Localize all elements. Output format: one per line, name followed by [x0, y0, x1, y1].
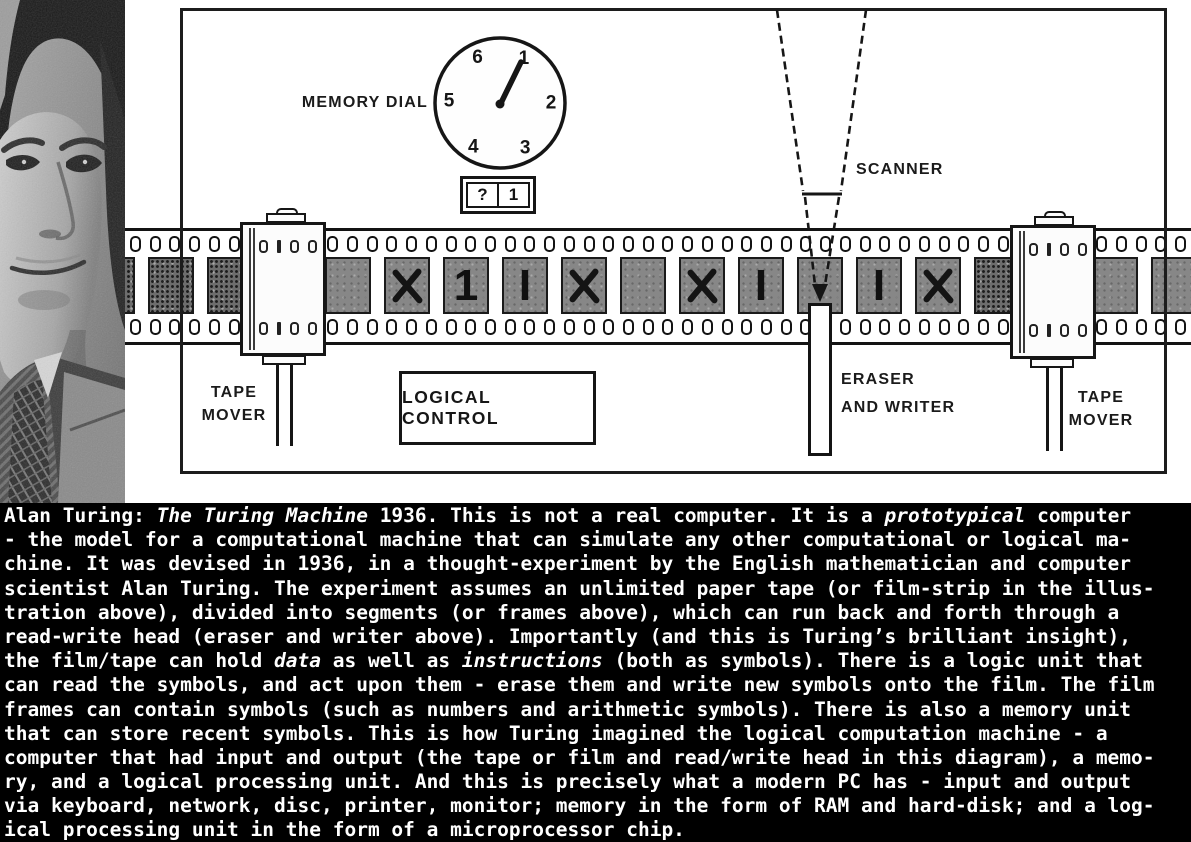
tape-mover-left-label: TAPEMOVER [196, 381, 272, 427]
sprocket-hole [603, 236, 614, 252]
sprocket-hole [564, 319, 575, 335]
sprocket-hole [367, 319, 378, 335]
sprocket-hole [446, 319, 457, 335]
sprocket-hole [1136, 319, 1147, 335]
sprocket-hole [150, 236, 161, 252]
hole-mark [1060, 324, 1069, 337]
hole-mark [1029, 243, 1038, 256]
symbol-cell: 1 [497, 184, 528, 206]
caption-italic-segment: data [274, 649, 321, 672]
caption-segment: computer that had input and output (the … [4, 746, 1155, 769]
turing-photo-art [0, 0, 125, 503]
sprocket-hole [860, 319, 871, 335]
sprocket-hole [169, 236, 180, 252]
sprocket-hole [406, 319, 417, 335]
caption-italic-segment: prototypical [885, 504, 1026, 527]
caption-line: Alan Turing: The Turing Machine 1936. Th… [4, 504, 1191, 528]
sprocket-hole [682, 236, 693, 252]
caption-segment: ry, and a logical processing unit. And t… [4, 770, 1131, 793]
sprocket-hole [406, 236, 417, 252]
sprocket-hole [702, 319, 713, 335]
sprocket-hole [722, 319, 733, 335]
caption-segment: (both as symbols). There is a logic unit… [603, 649, 1143, 672]
eraser-writer-label: ERASERAND WRITER [841, 366, 955, 422]
sprocket-hole [347, 319, 358, 335]
memory-dial-label: MEMORY DIAL [293, 94, 428, 112]
tape-mover-shaft-left [276, 364, 293, 446]
sprocket-hole [781, 236, 792, 252]
film-frame [325, 257, 371, 314]
sprocket-hole [643, 236, 654, 252]
tape-label-line: MOVER [1069, 412, 1134, 429]
film-frame [915, 257, 961, 314]
spool-hole-marks [1029, 243, 1087, 256]
eraser-label-line: AND WRITER [841, 399, 955, 416]
film-frame [1092, 257, 1138, 314]
sprocket-hole [584, 236, 595, 252]
logical-control-box: LOGICAL CONTROL [399, 371, 596, 445]
film-frame [620, 257, 666, 314]
sprocket-hole [998, 319, 1009, 335]
sprocket-hole [327, 236, 338, 252]
sprocket-hole [130, 236, 141, 252]
film-frame: 1 [443, 257, 489, 314]
tape-mover-shaft-right [1046, 367, 1063, 451]
caption-line: can read the symbols, and act upon them … [4, 673, 1191, 697]
sprocket-hole [386, 236, 397, 252]
caption-segment: scientist Alan Turing. The experiment as… [4, 577, 1155, 600]
sprocket-hole [505, 319, 516, 335]
hole-mark [290, 240, 299, 253]
sprocket-hole [919, 236, 930, 252]
sprocket-hole [1175, 236, 1186, 252]
sprocket-hole [840, 236, 851, 252]
symbol-register-inner: ? 1 [466, 182, 530, 208]
film-frame [148, 257, 194, 314]
sprocket-hole [209, 236, 220, 252]
sprocket-hole [761, 319, 772, 335]
hole-mark [277, 322, 281, 335]
film-frame: I [738, 257, 784, 314]
caption-segment: as well as [321, 649, 462, 672]
sprocket-hole [662, 236, 673, 252]
eraser-writer-head [808, 303, 832, 456]
logical-control-label: LOGICAL CONTROL [402, 387, 593, 429]
sprocket-hole [603, 319, 614, 335]
sprocket-hole [327, 319, 338, 335]
caption-segment: tration above), divided into segments (o… [4, 601, 1119, 624]
film-frame [1151, 257, 1191, 314]
caption-line: read-write head (eraser and writer above… [4, 625, 1191, 649]
caption-italic-segment: The Turing Machine [157, 504, 368, 527]
sprocket-hole [1155, 319, 1166, 335]
sprocket-hole [958, 236, 969, 252]
hole-mark [1078, 243, 1087, 256]
dial-number: 6 [472, 47, 483, 68]
caption-line: - the model for a computational machine … [4, 528, 1191, 552]
caption-line: scientist Alan Turing. The experiment as… [4, 577, 1191, 601]
spool-hole-marks [259, 322, 317, 335]
sprocket-hole [781, 319, 792, 335]
caption-segment: computer [1025, 504, 1131, 527]
tape-spool-right [1010, 225, 1096, 359]
sprocket-hole [386, 319, 397, 335]
hole-mark [1047, 324, 1051, 337]
turing-photo [0, 0, 125, 503]
sprocket-hole [1136, 236, 1147, 252]
caption-line: ry, and a logical processing unit. And t… [4, 770, 1191, 794]
sprocket-hole [169, 319, 180, 335]
sprocket-hole [643, 319, 654, 335]
sprocket-hole [939, 319, 950, 335]
spool-right-bottom-tab [1030, 358, 1074, 368]
sprocket-hole [189, 319, 200, 335]
film-frame: I [856, 257, 902, 314]
sprocket-hole [662, 319, 673, 335]
caption-line: tration above), divided into segments (o… [4, 601, 1191, 625]
sprocket-hole [919, 319, 930, 335]
sprocket-hole [1155, 236, 1166, 252]
spool-flange [249, 228, 255, 350]
caption-segment: Alan Turing: [4, 504, 157, 527]
film-frame [384, 257, 430, 314]
caption-text: Alan Turing: The Turing Machine 1936. Th… [0, 503, 1191, 842]
caption-segment: - the model for a computational machine … [4, 528, 1131, 551]
tape-mover-right-label: TAPEMOVER [1066, 386, 1136, 432]
sprocket-hole [820, 236, 831, 252]
sprocket-hole [189, 236, 200, 252]
film-frame [561, 257, 607, 314]
sprocket-hole [229, 236, 240, 252]
caption-segment: can read the symbols, and act upon them … [4, 673, 1155, 696]
dial-hub [496, 100, 505, 109]
sprocket-hole [367, 236, 378, 252]
sprocket-hole [1096, 319, 1107, 335]
sprocket-hole [505, 236, 516, 252]
sprocket-hole [446, 236, 457, 252]
sprocket-hole [800, 236, 811, 252]
hole-mark [308, 240, 317, 253]
sprocket-hole [1175, 319, 1186, 335]
caption-line: that can store recent symbols. This is h… [4, 722, 1191, 746]
sprocket-hole [702, 236, 713, 252]
sprocket-hole [524, 236, 535, 252]
dial-number: 4 [468, 136, 479, 157]
sprocket-hole [465, 236, 476, 252]
caption-segment: ical processing unit in the form of a mi… [4, 818, 685, 841]
caption-line: via keyboard, network, disc, printer, mo… [4, 794, 1191, 818]
caption-italic-segment: instructions [462, 649, 603, 672]
sprocket-hole [840, 319, 851, 335]
caption-line: chine. It was devised in 1936, in a thou… [4, 552, 1191, 576]
sprocket-hole [130, 319, 141, 335]
sprocket-hole [998, 236, 1009, 252]
hole-mark [1060, 243, 1069, 256]
sprocket-hole [761, 236, 772, 252]
film-frame [679, 257, 725, 314]
sprocket-hole [978, 319, 989, 335]
caption-line: frames can contain symbols (such as numb… [4, 698, 1191, 722]
sprocket-hole [722, 236, 733, 252]
spool-left-bottom-tab [262, 355, 306, 365]
hole-mark [308, 322, 317, 335]
caption-segment: the film/tape can hold [4, 649, 274, 672]
sprocket-hole [524, 319, 535, 335]
hole-mark [259, 240, 268, 253]
sprocket-hole [426, 236, 437, 252]
sprocket-hole [544, 319, 555, 335]
sprocket-hole [899, 236, 910, 252]
sprocket-hole [347, 236, 358, 252]
sprocket-hole [150, 319, 161, 335]
dial-number: 1 [519, 48, 530, 69]
hole-mark [259, 322, 268, 335]
sprocket-hole [485, 319, 496, 335]
tape-label-line: TAPE [1078, 389, 1124, 406]
sprocket-hole [899, 319, 910, 335]
sprocket-hole [1116, 319, 1127, 335]
spool-flange [1019, 231, 1025, 353]
hole-mark [1029, 324, 1038, 337]
sprocket-hole [879, 319, 890, 335]
film-frame [125, 257, 135, 314]
sprocket-hole [623, 319, 634, 335]
spool-hole-marks [1029, 324, 1087, 337]
sprocket-hole [544, 236, 555, 252]
symbol-cell: ? [468, 184, 497, 206]
screenshot-root: 1III TAPEMOVER TAPEMOVER 123456 MEMORY D… [0, 0, 1191, 842]
sprocket-hole [623, 236, 634, 252]
tape-label-line: TAPE [211, 384, 257, 401]
sprocket-hole [209, 319, 220, 335]
caption-line: the film/tape can hold data as well as i… [4, 649, 1191, 673]
sprocket-hole [426, 319, 437, 335]
sprocket-hole [564, 236, 575, 252]
caption-segment: chine. It was devised in 1936, in a thou… [4, 552, 1131, 575]
sprocket-hole [741, 236, 752, 252]
dial-number: 2 [546, 92, 557, 113]
sprocket-hole [939, 236, 950, 252]
dial-number: 3 [520, 137, 531, 158]
caption-segment: read-write head (eraser and writer above… [4, 625, 1131, 648]
sprocket-hole [741, 319, 752, 335]
caption-segment: 1936. This is not a real computer. It is… [368, 504, 885, 527]
dial-number: 5 [444, 91, 455, 112]
sprocket-hole [958, 319, 969, 335]
symbol-register: ? 1 [460, 176, 536, 214]
hole-mark [290, 322, 299, 335]
caption-line: ical processing unit in the form of a mi… [4, 818, 1191, 842]
sprocket-hole [485, 236, 496, 252]
tape-spool-left [240, 222, 326, 356]
spool-hole-marks [259, 240, 317, 253]
sprocket-hole [978, 236, 989, 252]
sprocket-hole [860, 236, 871, 252]
hole-mark [1047, 243, 1051, 256]
caption-segment: via keyboard, network, disc, printer, mo… [4, 794, 1155, 817]
hole-mark [1078, 324, 1087, 337]
sprocket-hole [1116, 236, 1127, 252]
sprocket-hole [229, 319, 240, 335]
caption-segment: that can store recent symbols. This is h… [4, 722, 1108, 745]
caption-line: computer that had input and output (the … [4, 746, 1191, 770]
sprocket-hole [465, 319, 476, 335]
tape-label-line: MOVER [202, 407, 267, 424]
scanner-label: SCANNER [856, 161, 944, 179]
sprocket-hole [584, 319, 595, 335]
sprocket-hole [879, 236, 890, 252]
hole-mark [277, 240, 281, 253]
sprocket-hole [682, 319, 693, 335]
eraser-label-line: ERASER [841, 371, 915, 388]
memory-dial: 123456 [428, 31, 572, 175]
film-frame: I [502, 257, 548, 314]
caption-segment: frames can contain symbols (such as numb… [4, 698, 1131, 721]
sprocket-hole [1096, 236, 1107, 252]
